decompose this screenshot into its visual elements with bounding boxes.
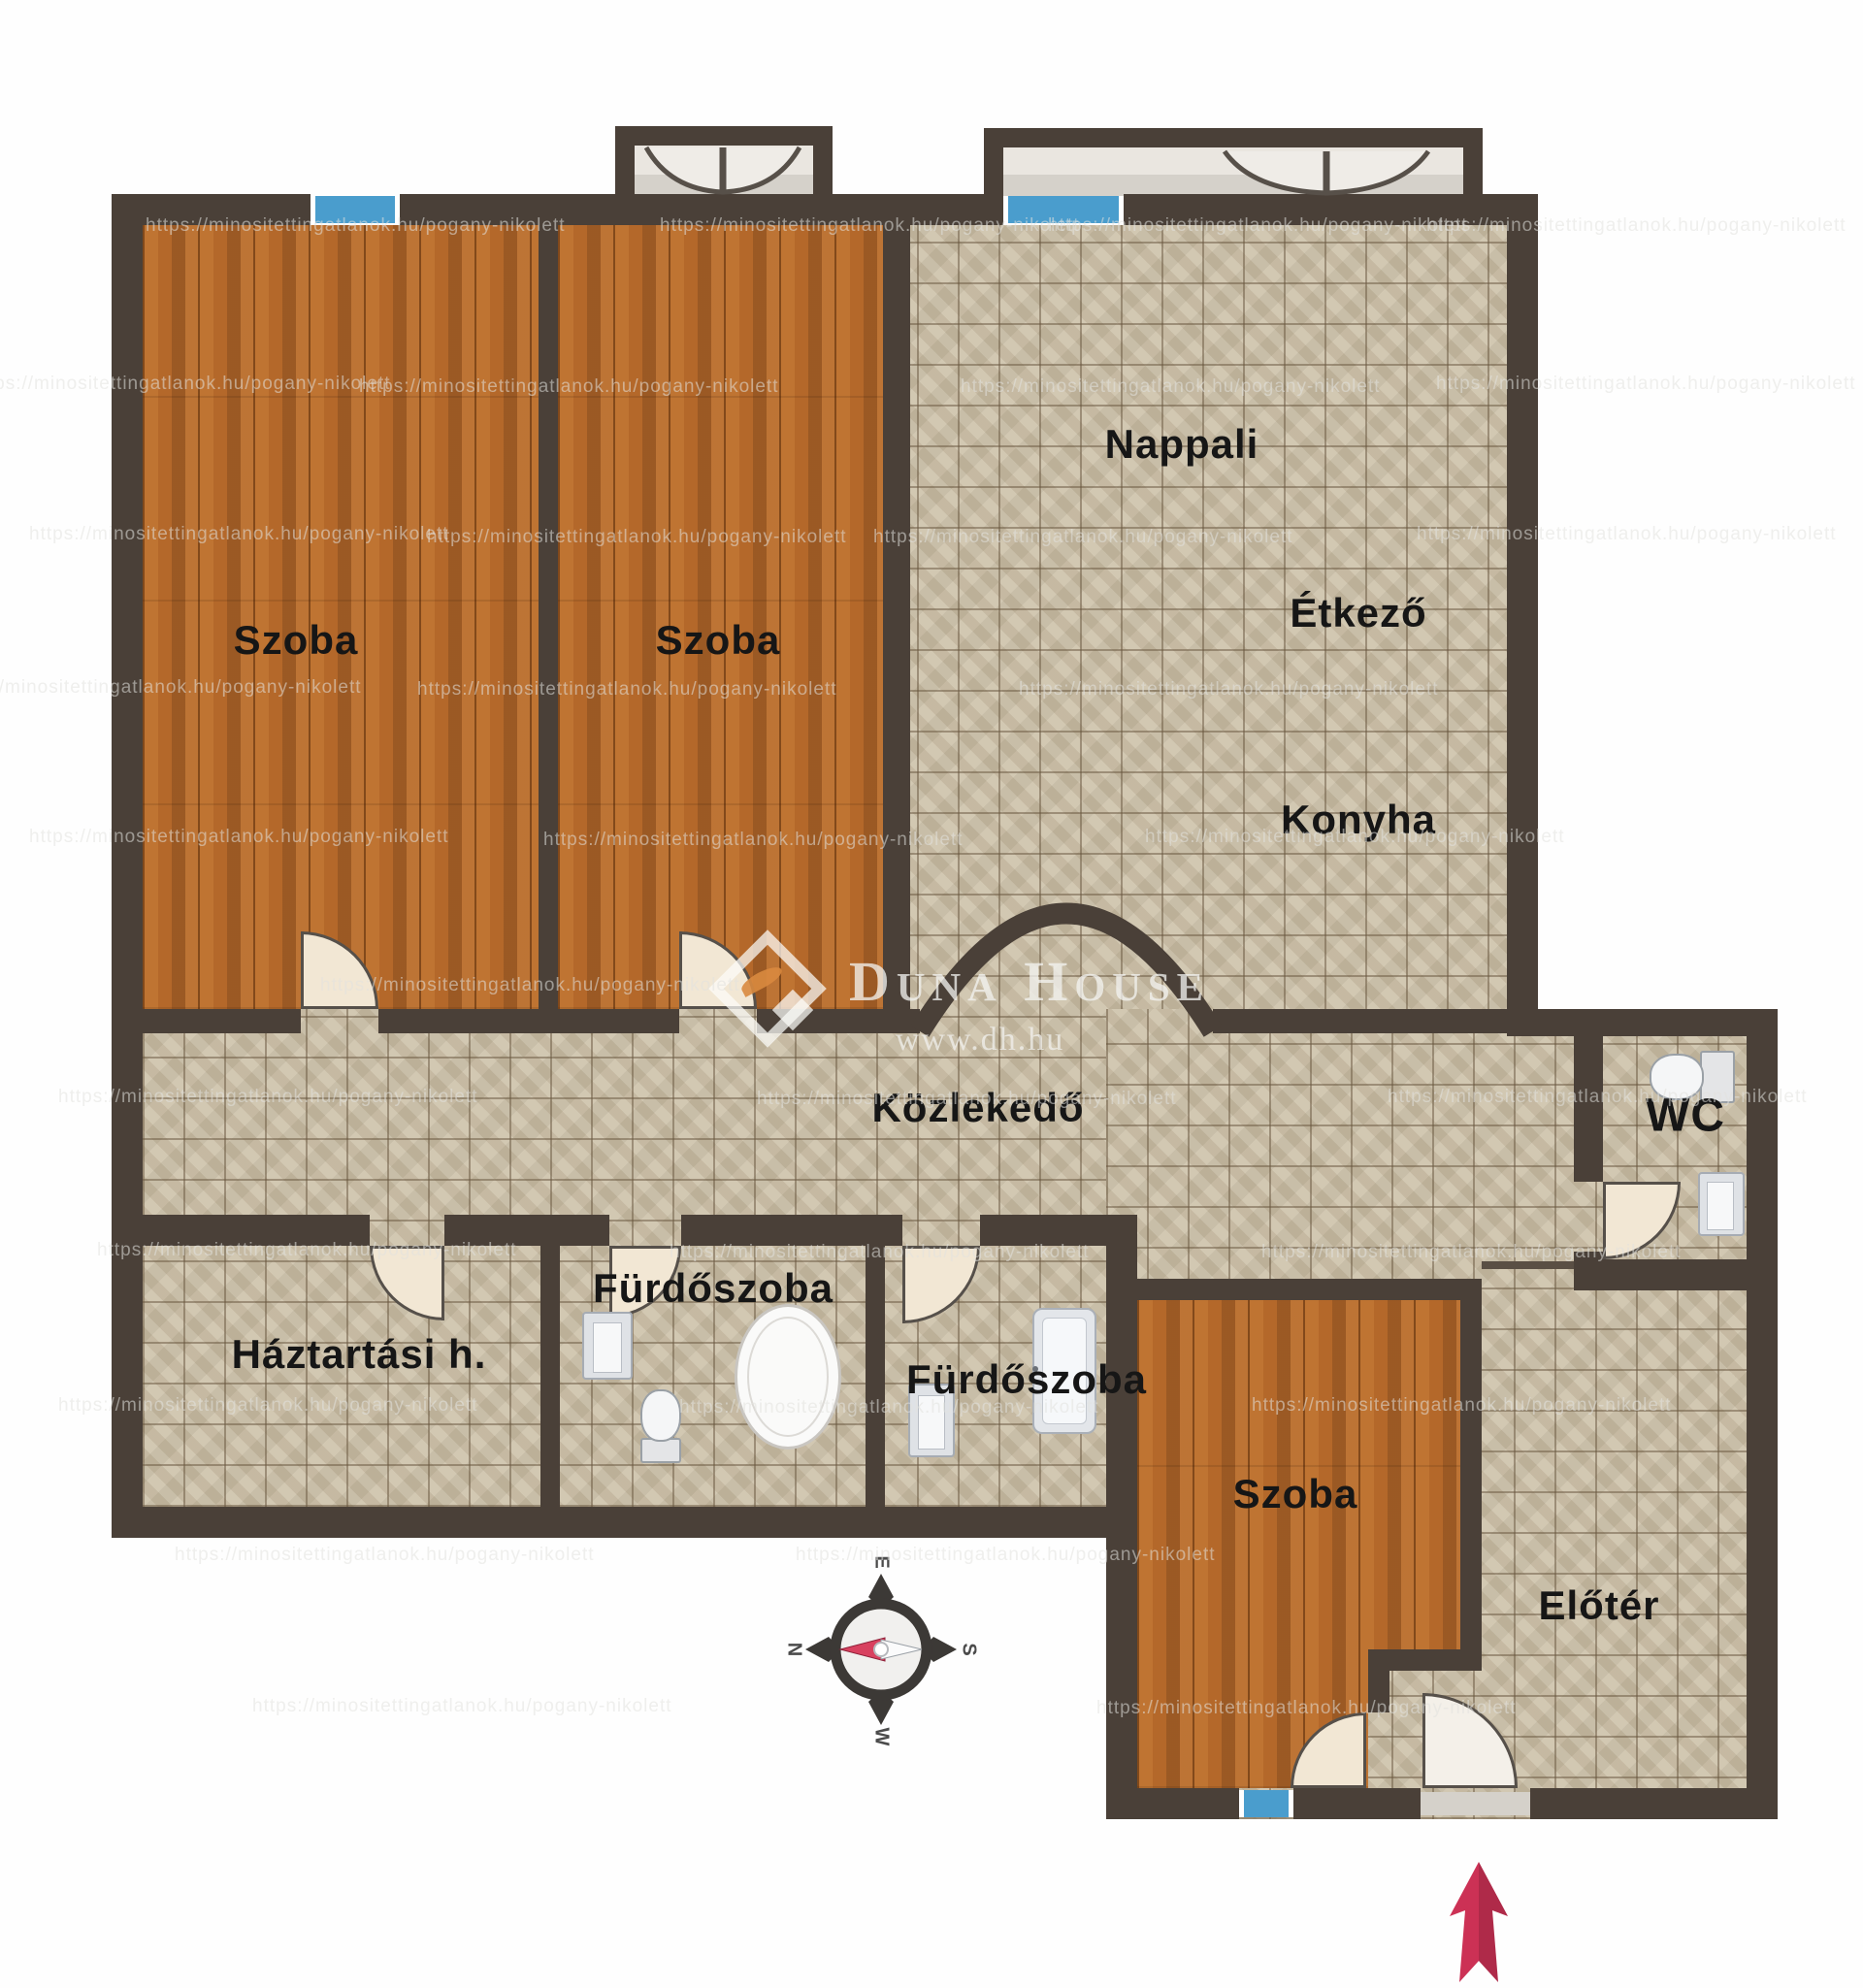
url-watermark: https://minositettingatlanok.hu/pogany-n…	[1048, 215, 1468, 237]
bay-window-szoba2-sill	[635, 175, 813, 196]
compass-hub	[874, 1643, 888, 1656]
wall-konyha-bottom	[1213, 1009, 1507, 1033]
url-watermark: https://minositettingatlanok.hu/pogany-n…	[961, 376, 1381, 398]
url-watermark: https://minositettingatlanok.hu/pogany-n…	[1417, 524, 1837, 545]
url-watermark: https://minositettingatlanok.hu/pogany-n…	[1096, 1698, 1517, 1719]
url-watermark: https://minositettingatlanok.hu/pogany-n…	[58, 1395, 478, 1417]
bay-window-nappali-left-wall	[984, 128, 1003, 196]
url-watermark: https://minositettingatlanok.hu/pogany-n…	[0, 374, 391, 395]
room-label-szoba-2: Szoba	[656, 617, 781, 664]
url-watermark: https://minositettingatlanok.hu/pogany-n…	[97, 1240, 517, 1261]
url-watermark: https://minositettingatlanok.hu/pogany-n…	[1145, 827, 1565, 848]
compass-letter-left: N	[783, 1643, 805, 1656]
bay-window-szoba2-right-wall	[813, 126, 833, 196]
url-watermark: https://minositettingatlanok.hu/pogany-n…	[320, 975, 740, 996]
window-szoba3-bottom	[1239, 1790, 1293, 1817]
room-label-eloter: Előtér	[1538, 1582, 1659, 1629]
wall-haztartasi-furdo1	[540, 1246, 560, 1507]
wall-wc-left-a	[1574, 1036, 1603, 1182]
wall-right-main	[1507, 194, 1538, 1033]
url-watermark: https://minositettingatlanok.hu/pogany-n…	[543, 830, 964, 851]
wall-wc-bottom	[1574, 1259, 1778, 1290]
url-watermark: https://minositettingatlanok.hu/pogany-n…	[1261, 1242, 1682, 1263]
wall-hall-top-b	[378, 1009, 679, 1033]
url-watermark: https://minositettingatlanok.hu/pogany-n…	[29, 827, 449, 848]
url-watermark: https://minositettingatlanok.hu/pogany-n…	[1436, 374, 1856, 395]
dunahouse-wordmark: Duna House	[849, 949, 1210, 1014]
wall-szoba3-left	[1106, 1215, 1137, 1819]
room-label-szoba-1: Szoba	[234, 617, 359, 664]
bay-window-nappali-sill	[1003, 175, 1463, 196]
room-label-furdoszoba-2: Fürdőszoba	[906, 1356, 1147, 1403]
wall-bottom-right-b	[1293, 1788, 1421, 1819]
wall-szoba1-szoba2	[539, 225, 558, 1033]
url-watermark: https://minositettingatlanok.hu/pogany-n…	[427, 527, 847, 548]
bathtub-furdoszoba1	[735, 1304, 841, 1450]
url-watermark: https://minositettingatlanok.hu/pogany-n…	[175, 1545, 595, 1566]
room-label-etkezo: Étkező	[1290, 590, 1426, 636]
url-watermark: https://minositettingatlanok.hu/pogany-n…	[660, 215, 1080, 237]
room-label-furdoszoba-1: Fürdőszoba	[593, 1265, 833, 1312]
dunahouse-website: www.dh.hu	[896, 1022, 1064, 1059]
url-watermark: https://minositettingatlanok.hu/pogany-n…	[359, 376, 779, 398]
wall-szoba3-top	[1106, 1279, 1482, 1300]
room-label-nappali: Nappali	[1105, 421, 1259, 468]
url-watermark: https://minositettingatlanok.hu/pogany-n…	[58, 1087, 478, 1108]
url-watermark: https://minositettingatlanok.hu/pogany-n…	[757, 1089, 1177, 1110]
wall-extension-top	[1507, 1009, 1778, 1036]
wall-bottom-left	[112, 1507, 1137, 1538]
wall-hall-top-a	[143, 1009, 301, 1033]
sink-furdoszoba1	[582, 1312, 633, 1380]
wall-far-right	[1747, 1009, 1778, 1819]
wall-furdo1-furdo2	[866, 1246, 885, 1507]
floor-plan: Szoba Szoba Nappali Étkező Konyha Közlek…	[0, 0, 1863, 1988]
entrance-threshold	[1421, 1792, 1530, 1815]
url-watermark: https://minositettingatlanok.hu/pogany-n…	[679, 1397, 1099, 1418]
url-watermark: https://minositettingatlanok.hu/pogany-n…	[796, 1545, 1216, 1566]
wall-left	[112, 194, 143, 1538]
wall-szoba3-right-upper	[1460, 1279, 1482, 1671]
bay-window-szoba2-top-wall	[615, 126, 833, 146]
url-watermark: https://minositettingatlanok.hu/pogany-n…	[873, 527, 1293, 548]
bay-window-nappali-right-wall	[1463, 128, 1483, 196]
url-watermark: https://minositettingatlanok.hu/pogany-n…	[1019, 679, 1439, 701]
url-watermark: https://minositettingatlanok.hu/pogany-n…	[1252, 1395, 1672, 1417]
entrance-arrow-icon	[1436, 1858, 1523, 1988]
url-watermark: https://minositettingatlanok.hu/pogany-n…	[417, 679, 837, 701]
url-watermark: https://minositettingatlanok.hu/pogany-n…	[29, 524, 449, 545]
url-watermark: https://minositettingatlanok.hu/pogany-n…	[1388, 1087, 1808, 1108]
compass-letter-bottom: W	[870, 1728, 893, 1746]
compass-letter-right: S	[958, 1643, 980, 1655]
bay-window-nappali-top-wall	[984, 128, 1483, 147]
compass: E N S W	[784, 1552, 978, 1746]
url-watermark: https://minositettingatlanok.hu/pogany-n…	[670, 1242, 1090, 1263]
toilet-furdoszoba1	[638, 1389, 683, 1465]
wall-bottom-right-c	[1530, 1788, 1778, 1819]
url-watermark: https://minositettingatlanok.hu/pogany-n…	[0, 677, 362, 699]
room-label-szoba-3: Szoba	[1233, 1471, 1358, 1517]
bay-window-szoba2-left-wall	[615, 126, 635, 196]
sink-wc	[1698, 1172, 1745, 1236]
url-watermark: https://minositettingatlanok.hu/pogany-n…	[1426, 215, 1847, 237]
url-watermark: https://minositettingatlanok.hu/pogany-n…	[252, 1696, 672, 1717]
room-label-haztartasi: Háztartási h.	[232, 1331, 487, 1378]
url-watermark: https://minositettingatlanok.hu/pogany-n…	[146, 215, 566, 237]
wall-szoba2-nappali	[883, 225, 910, 1033]
